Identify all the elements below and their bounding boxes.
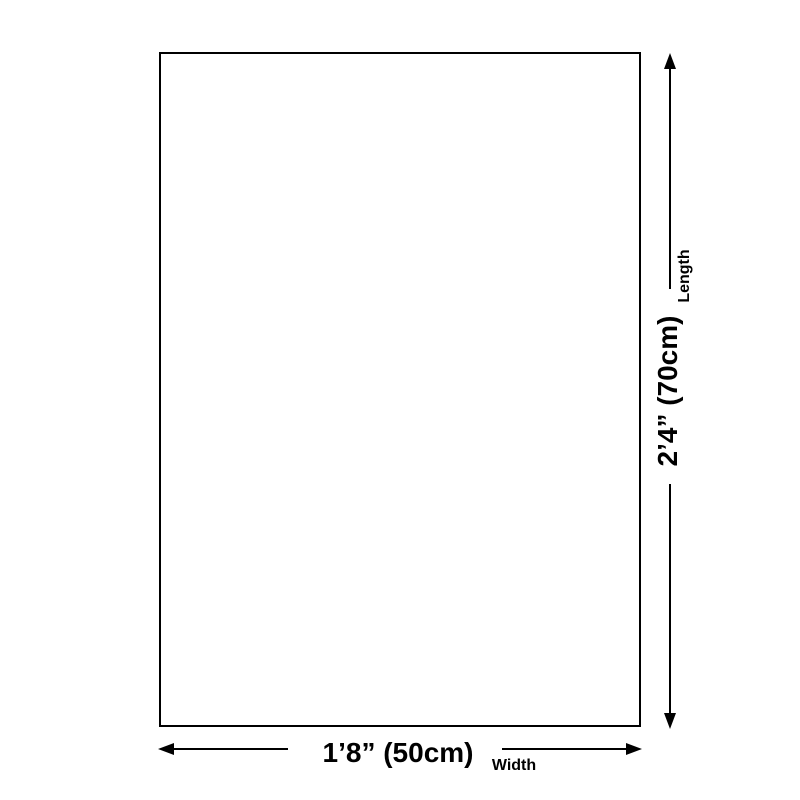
product-outline-rectangle (159, 52, 641, 727)
width-value: 1’8” (50cm) (323, 737, 474, 769)
width-dimension-line-left (170, 748, 288, 750)
length-label: Length (676, 249, 694, 302)
size-diagram: Length 2’4” (70cm) 1’8” (50cm) Width (0, 0, 800, 800)
length-dimension-line-bottom (669, 484, 671, 716)
length-value: 2’4” (70cm) (652, 316, 684, 467)
arrow-down-icon (664, 713, 676, 729)
width-dimension-line-right (502, 748, 629, 750)
width-label: Width (492, 757, 536, 775)
length-dimension-line-top (669, 66, 671, 289)
arrow-right-icon (626, 743, 642, 755)
